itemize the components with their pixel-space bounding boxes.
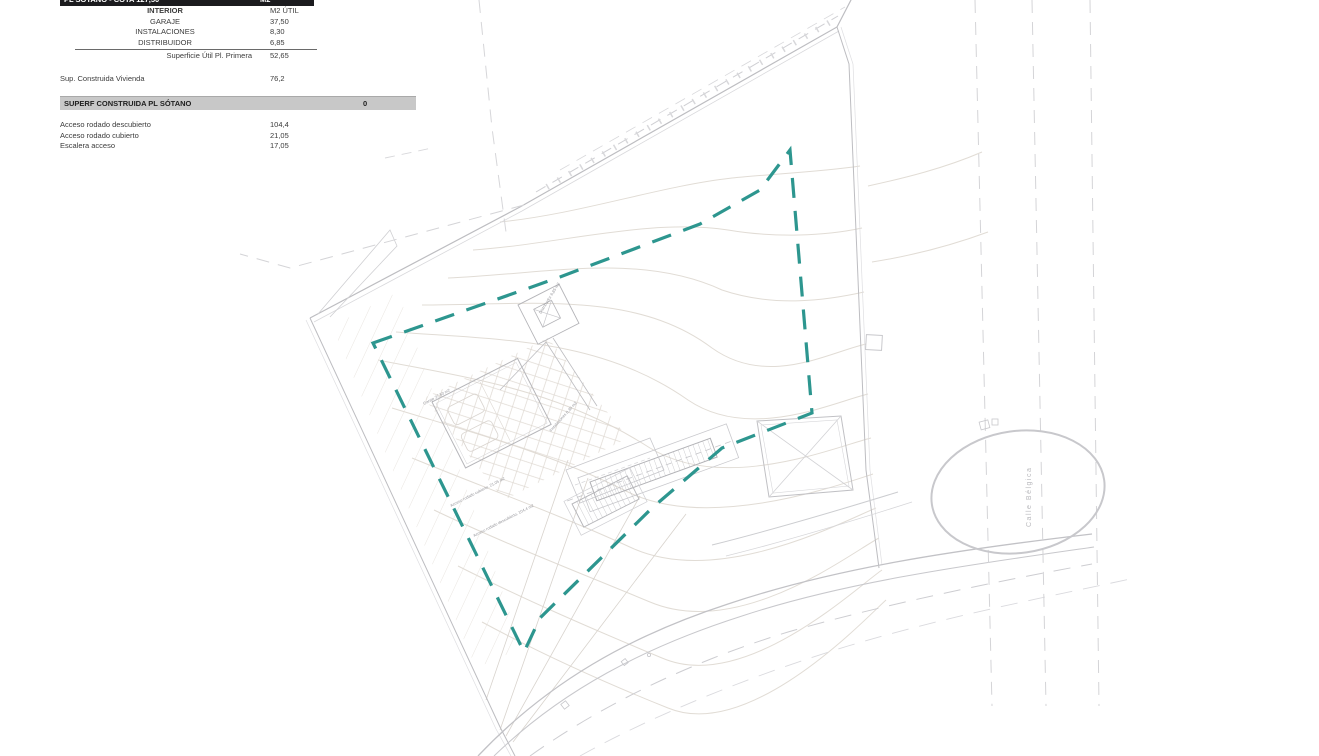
- curved-road: [478, 492, 1135, 756]
- row-label: INSTALACIONES: [60, 27, 270, 38]
- row-label: Superficie Útil Pl. Primera: [60, 51, 270, 62]
- table-row: INTERIOR M2 ÚTIL: [60, 6, 420, 17]
- row-label: INTERIOR: [60, 6, 270, 17]
- row-value: 52,65: [270, 51, 420, 62]
- row-label: DISTRIBUIDOR: [60, 38, 270, 49]
- row-value: 17,05: [270, 141, 420, 152]
- area-summary-table: PL SÓTANO - COTA 127,50 M2 INTERIOR M2 Ú…: [60, 0, 420, 152]
- table-row: DISTRIBUIDOR 6,85: [60, 38, 420, 49]
- row-value: 21,05: [270, 131, 420, 142]
- utility-square: [866, 335, 883, 351]
- row-label: Acceso rodado cubierto: [60, 131, 270, 142]
- table-divider: [75, 49, 317, 50]
- row-value: M2 ÚTIL: [270, 6, 420, 17]
- calle-belgica-road: [975, 0, 1099, 706]
- row-label: GARAJE: [60, 17, 270, 28]
- table-row: INSTALACIONES 8,30: [60, 27, 420, 38]
- section-title: SUPERF CONSTRUIDA PL SÓTANO: [64, 99, 191, 108]
- table-row: GARAJE 37,50: [60, 17, 420, 28]
- row-value: 37,50: [270, 17, 420, 28]
- row-label: Sup. Construida Vivienda: [60, 74, 270, 85]
- street-name-label: Calle Bélgica: [1026, 467, 1033, 527]
- distribuidor-label: Distribuidor 6,85 m2: [538, 281, 562, 315]
- row-label: Escalera acceso: [60, 141, 270, 152]
- acceso-descubierto-label: Acceso rodado descubierto, 104,4 m2: [472, 502, 535, 537]
- row-value: 6,85: [270, 38, 420, 49]
- table-header-bar: PL SÓTANO - COTA 127,50 M2: [60, 0, 314, 6]
- table-row: Escalera acceso 17,05: [60, 141, 420, 152]
- row-label: Acceso rodado descubierto: [60, 120, 270, 131]
- table-unit: M2: [260, 0, 270, 7]
- table-row: Acceso rodado descubierto 104,4: [60, 120, 420, 131]
- table-subtotal-row: Superficie Útil Pl. Primera 52,65: [60, 51, 420, 62]
- row-value: 76,2: [270, 74, 420, 85]
- row-value: 8,30: [270, 27, 420, 38]
- table-built-row: Sup. Construida Vivienda 76,2: [60, 74, 420, 85]
- section-value: 0: [363, 97, 367, 110]
- site-plan-page: { "table": { "header": { "title": "PL SÓ…: [0, 0, 1319, 756]
- section-header-bar: SUPERF CONSTRUIDA PL SÓTANO 0: [60, 96, 416, 110]
- table-row: Acceso rodado cubierto 21,05: [60, 131, 420, 142]
- table-title: PL SÓTANO - COTA 127,50: [64, 0, 159, 4]
- row-value: 104,4: [270, 120, 420, 131]
